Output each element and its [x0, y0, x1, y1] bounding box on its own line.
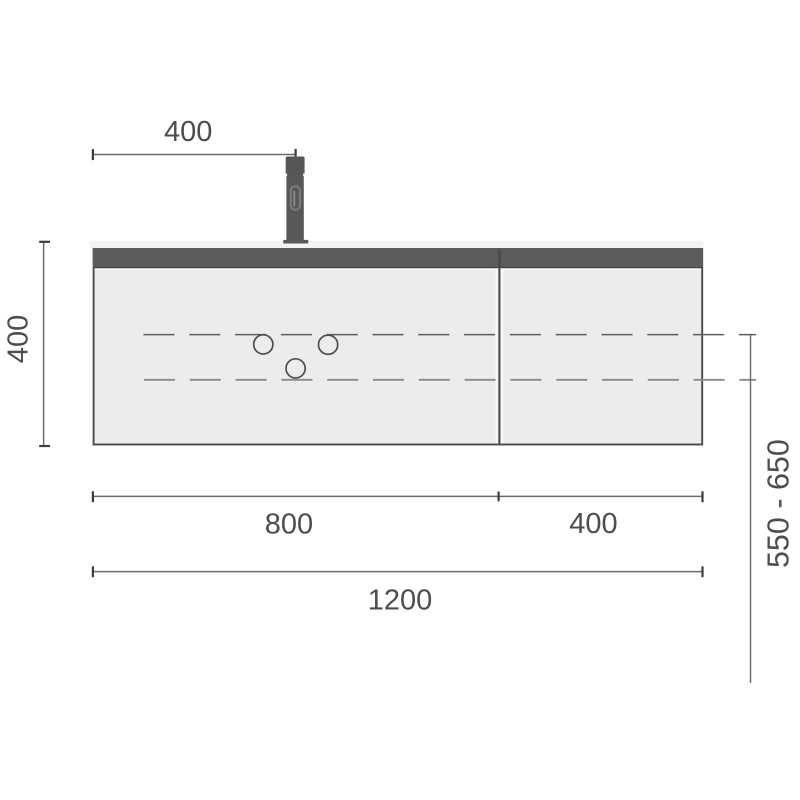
svg-text:550 - 650: 550 - 650 [762, 439, 796, 568]
svg-text:400: 400 [164, 116, 212, 148]
svg-text:800: 800 [265, 509, 313, 541]
svg-text:400: 400 [569, 508, 617, 540]
svg-text:1200: 1200 [368, 584, 433, 616]
svg-text:400: 400 [3, 315, 35, 363]
